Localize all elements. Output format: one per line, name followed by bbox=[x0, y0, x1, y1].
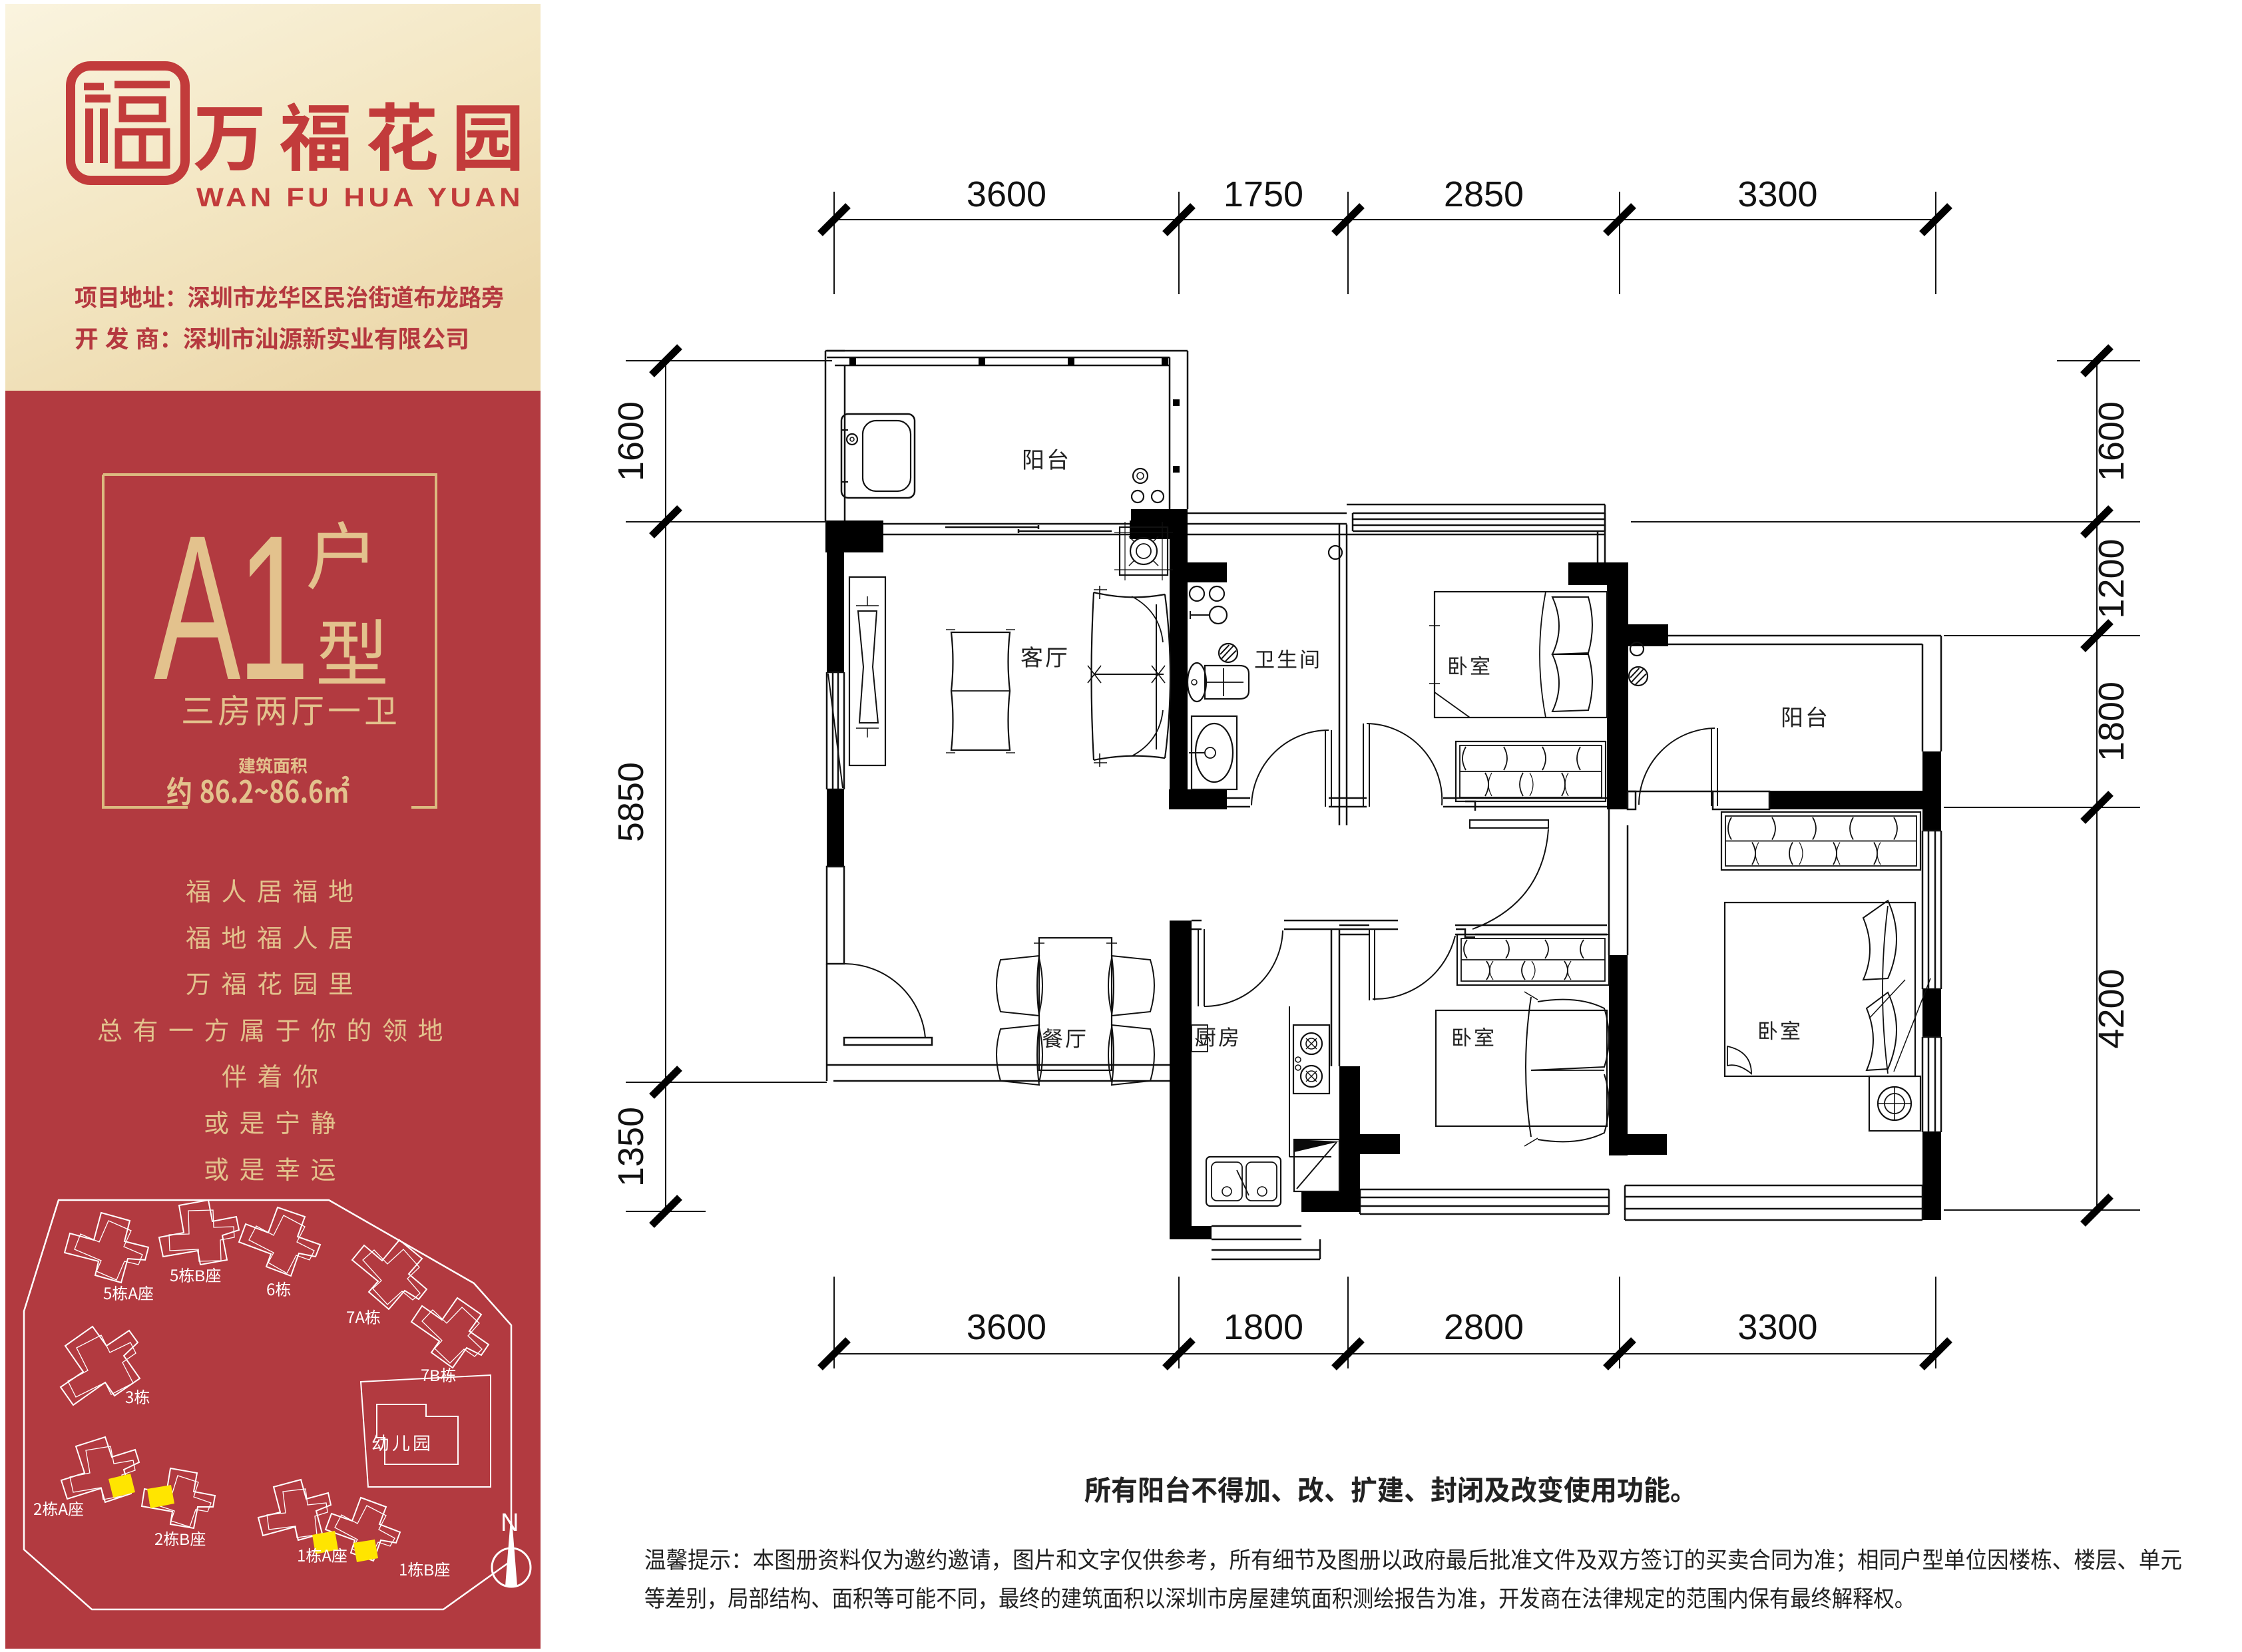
svg-text:2850: 2850 bbox=[1444, 174, 1524, 214]
svg-text:5850: 5850 bbox=[611, 762, 651, 842]
svg-text:3600: 3600 bbox=[967, 1307, 1046, 1347]
svg-text:2栋A座: 2栋A座 bbox=[33, 1496, 84, 1520]
svg-text:卧室: 卧室 bbox=[1447, 650, 1492, 680]
svg-text:5栋B座: 5栋B座 bbox=[170, 1263, 221, 1286]
svg-text:阳台: 阳台 bbox=[1781, 700, 1830, 732]
svg-text:1800: 1800 bbox=[1224, 1307, 1303, 1347]
svg-text:幼儿园: 幼儿园 bbox=[371, 1429, 433, 1455]
svg-text:餐厅: 餐厅 bbox=[1042, 1022, 1088, 1053]
svg-text:5栋A座: 5栋A座 bbox=[103, 1281, 154, 1304]
svg-text:等差别，局部结构、面积等可能不同，最终的建筑面积以深圳市房屋: 等差别，局部结构、面积等可能不同，最终的建筑面积以深圳市房屋建筑面积测绘报告为准… bbox=[644, 1580, 1915, 1614]
svg-text:卧室: 卧室 bbox=[1451, 1021, 1496, 1051]
svg-text:WAN FU HUA YUAN: WAN FU HUA YUAN bbox=[196, 183, 524, 212]
svg-text:三房两厅一卫: 三房两厅一卫 bbox=[181, 685, 401, 733]
svg-text:3600: 3600 bbox=[967, 174, 1046, 214]
svg-text:1600: 1600 bbox=[611, 401, 651, 481]
svg-text:2800: 2800 bbox=[1444, 1307, 1524, 1347]
svg-text:所有阳台不得加、改、扩建、封闭及改变使用功能。: 所有阳台不得加、改、扩建、封闭及改变使用功能。 bbox=[1084, 1468, 1697, 1509]
svg-text:1350: 1350 bbox=[611, 1107, 651, 1187]
svg-text:伴着你: 伴着你 bbox=[222, 1056, 329, 1093]
svg-text:7B栋: 7B栋 bbox=[421, 1362, 456, 1386]
svg-text:2栋B座: 2栋B座 bbox=[154, 1526, 206, 1549]
svg-text:N: N bbox=[501, 1509, 519, 1537]
svg-text:3300: 3300 bbox=[1737, 174, 1817, 214]
svg-text:总有一方属于你的领地: 总有一方属于你的领地 bbox=[97, 1010, 453, 1047]
svg-text:3300: 3300 bbox=[1737, 1307, 1817, 1347]
svg-text:客厅: 客厅 bbox=[1020, 640, 1070, 672]
svg-text:厨房: 厨房 bbox=[1195, 1021, 1241, 1052]
svg-text:约 86.2~86.6㎡: 约 86.2~86.6㎡ bbox=[166, 768, 349, 812]
svg-text:万福花园里: 万福花园里 bbox=[186, 964, 364, 1000]
svg-text:卫生间: 卫生间 bbox=[1254, 643, 1322, 673]
svg-text:1栋B座: 1栋B座 bbox=[399, 1557, 450, 1580]
svg-text:阳台: 阳台 bbox=[1022, 442, 1071, 475]
svg-text:或是幸运: 或是幸运 bbox=[204, 1149, 346, 1186]
svg-text:卧室: 卧室 bbox=[1757, 1014, 1803, 1044]
svg-text:1200: 1200 bbox=[2092, 538, 2131, 618]
svg-text:户: 户 bbox=[306, 498, 379, 604]
svg-text:1750: 1750 bbox=[1224, 174, 1303, 214]
svg-text:3栋: 3栋 bbox=[125, 1384, 150, 1408]
svg-text:开 发 商：深圳市汕源新实业有限公司: 开 发 商：深圳市汕源新实业有限公司 bbox=[75, 320, 469, 355]
svg-text:6栋: 6栋 bbox=[266, 1277, 291, 1300]
svg-text:福人居福地: 福人居福地 bbox=[186, 871, 364, 908]
svg-text:温馨提示：本图册资料仅为邀约邀请，图片和文字仅供参考，所有细: 温馨提示：本图册资料仅为邀约邀请，图片和文字仅供参考，所有细节及图册以政府最后批… bbox=[644, 1542, 2182, 1575]
svg-text:1栋A座: 1栋A座 bbox=[297, 1543, 347, 1566]
svg-text:1600: 1600 bbox=[2092, 401, 2131, 481]
svg-text:或是宁静: 或是宁静 bbox=[204, 1103, 346, 1139]
svg-text:福地福人居: 福地福人居 bbox=[186, 918, 364, 954]
svg-text:1800: 1800 bbox=[2092, 682, 2131, 761]
svg-text:4200: 4200 bbox=[2092, 968, 2131, 1048]
svg-text:项目地址：深圳市龙华区民治街道布龙路旁: 项目地址：深圳市龙华区民治街道布龙路旁 bbox=[75, 279, 504, 313]
svg-text:7A栋: 7A栋 bbox=[346, 1305, 381, 1328]
